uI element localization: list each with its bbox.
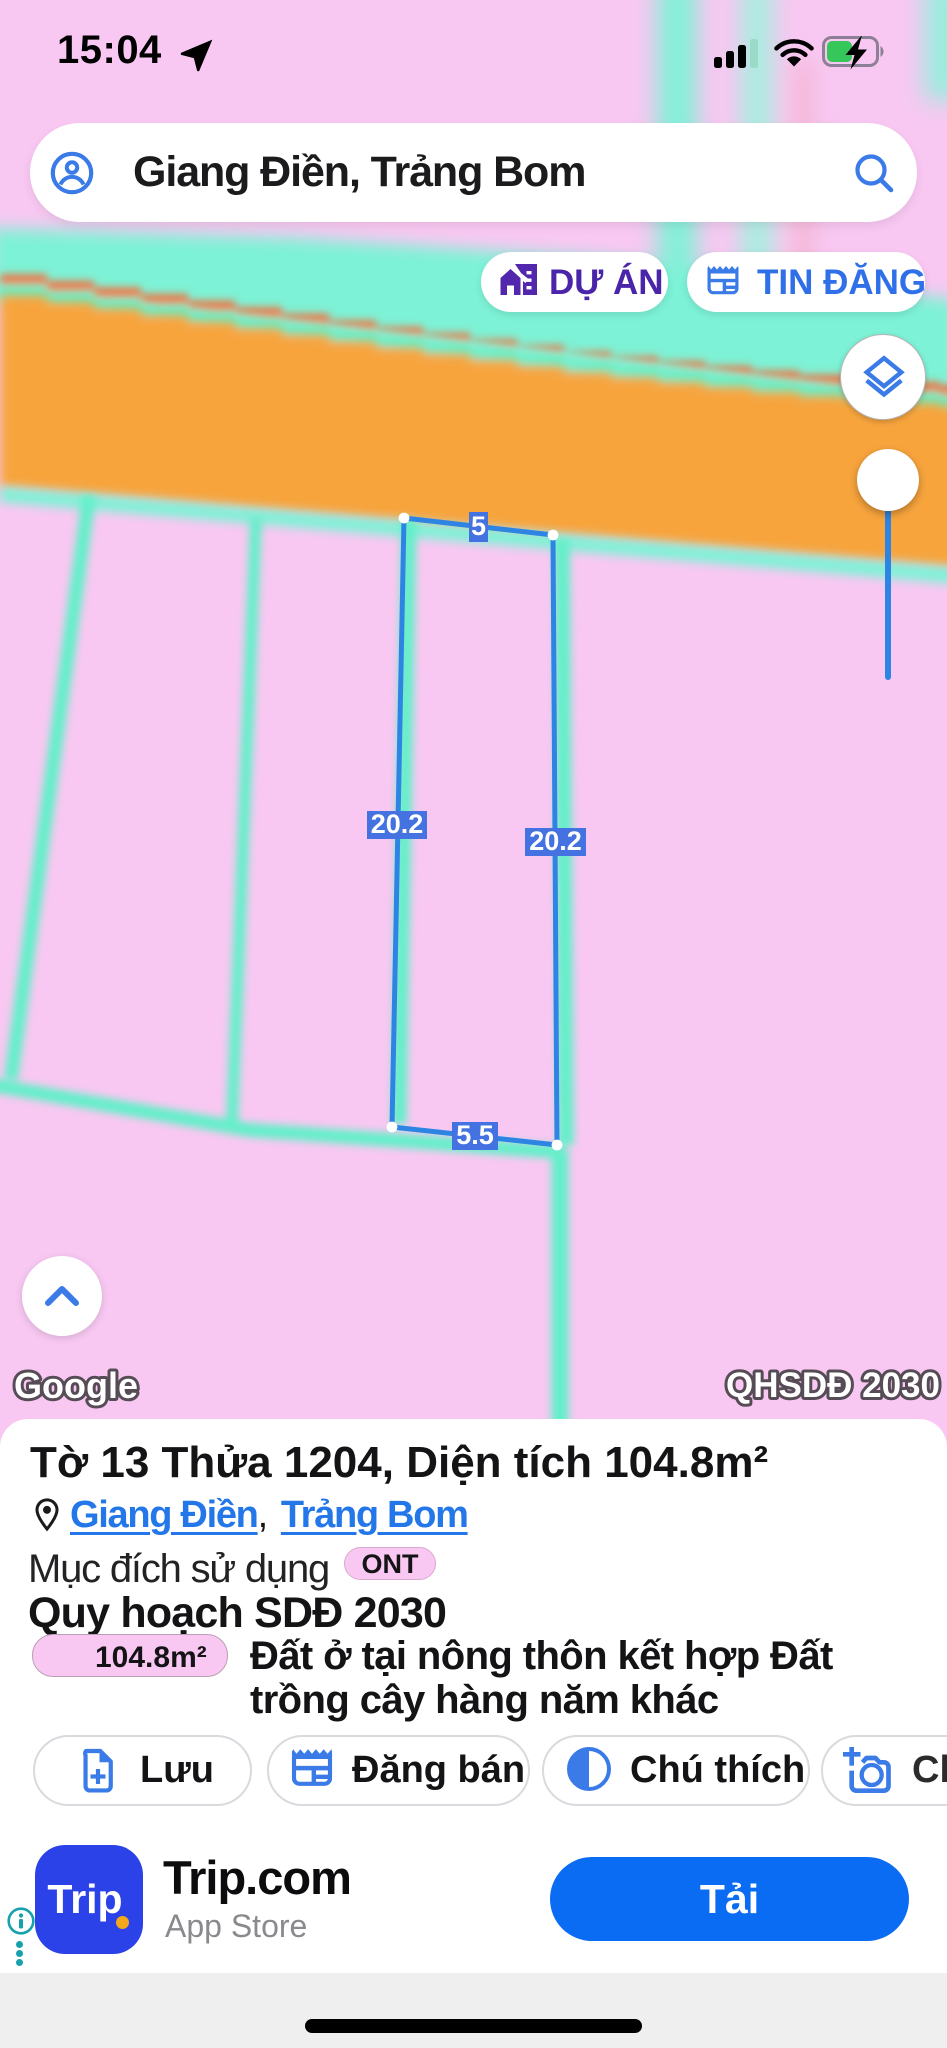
svg-text:5: 5 (471, 511, 486, 541)
svg-text:5.5: 5.5 (456, 1120, 494, 1150)
svg-text:Google: Google (14, 1365, 138, 1406)
svg-text:QHSDĐ 2030: QHSDĐ 2030 (726, 1366, 940, 1405)
svg-text:20.2: 20.2 (371, 809, 424, 839)
svg-text:20.2: 20.2 (529, 826, 582, 856)
